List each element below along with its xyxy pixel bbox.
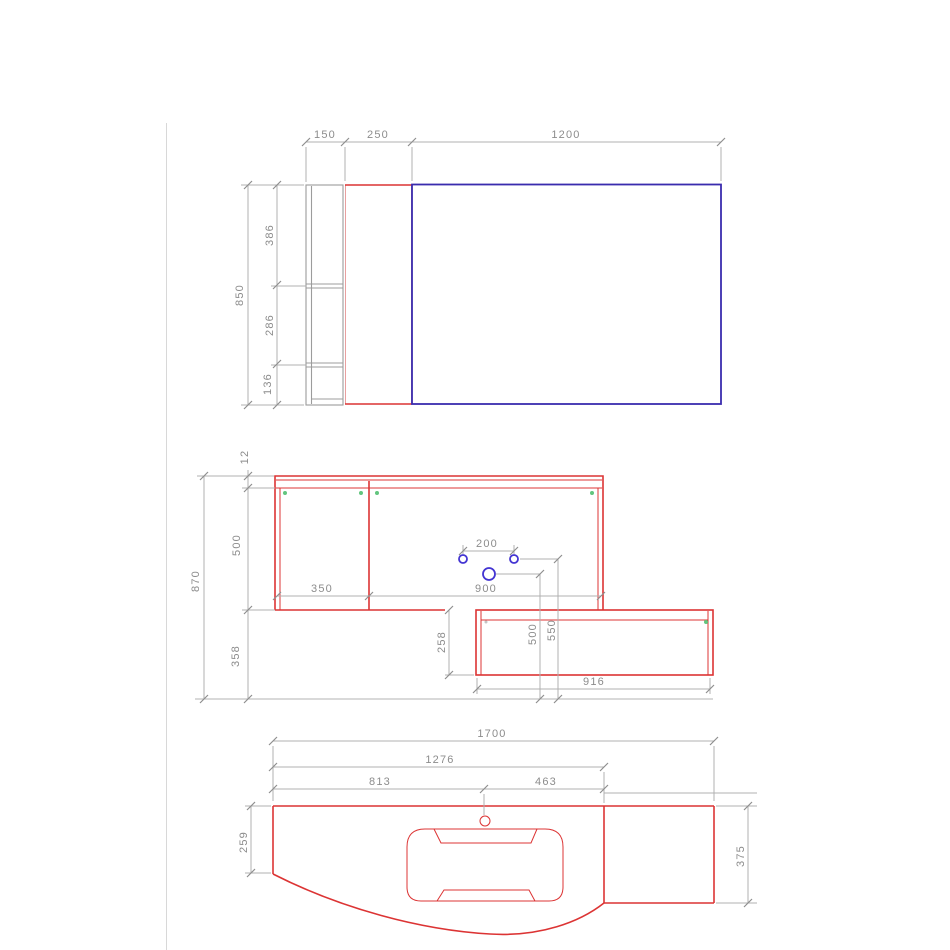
drawer-unit-outline	[476, 610, 713, 675]
dim-label-shelf-width: 150	[314, 129, 336, 141]
dim-label-top-rail: 12	[239, 450, 251, 465]
dim-label-depth-right: 375	[735, 845, 747, 867]
bottom-view-dimensions	[245, 737, 757, 907]
drawing-sheet: 150 250 1200 850 386 286 136 12 500 358 …	[0, 0, 950, 950]
hinge-dots	[283, 491, 594, 495]
dim-label-left-door-width: 350	[311, 583, 333, 595]
dim-label-tap-hole-height: 550	[546, 619, 558, 641]
top-view-dimensions	[241, 138, 725, 409]
dim-label-depth-left: 259	[238, 831, 250, 853]
dim-label-top-total-height: 850	[234, 284, 246, 306]
dim-label-cabinet-height: 500	[231, 534, 243, 556]
front-view	[195, 470, 714, 703]
dim-label-plinth-height: 358	[230, 645, 242, 667]
bottom-view	[245, 737, 757, 934]
mounting-holes	[459, 555, 518, 580]
dim-label-hole-spacing: 200	[476, 538, 498, 550]
dim-label-segment-bottom: 136	[262, 373, 274, 395]
side-panel-outline	[345, 185, 412, 404]
mirror-outline	[412, 185, 721, 405]
dim-label-segment-middle: 286	[264, 314, 276, 336]
basin-bowl-outline	[407, 816, 563, 901]
dim-label-drawer-width: 916	[583, 676, 605, 688]
dim-label-basin-total-width: 1700	[477, 728, 506, 740]
tap-hole	[480, 816, 490, 826]
dim-label-drain-height: 500	[527, 623, 539, 645]
shelf-column-outline	[306, 185, 343, 405]
drawing-canvas	[0, 0, 950, 950]
dim-label-basin-span: 1276	[425, 754, 454, 766]
dim-label-side-panel-width: 250	[367, 129, 389, 141]
dim-label-segment-top: 386	[264, 224, 276, 246]
dim-label-drawer-height: 258	[436, 631, 448, 653]
countertop-outline	[273, 806, 714, 934]
top-view	[241, 138, 725, 409]
dim-label-right-door-width: 900	[475, 583, 497, 595]
dim-label-left-of-tap: 813	[369, 776, 391, 788]
dim-label-right-of-tap: 463	[535, 776, 557, 788]
dim-label-front-total-height: 870	[190, 570, 202, 592]
dim-label-mirror-width: 1200	[551, 129, 580, 141]
